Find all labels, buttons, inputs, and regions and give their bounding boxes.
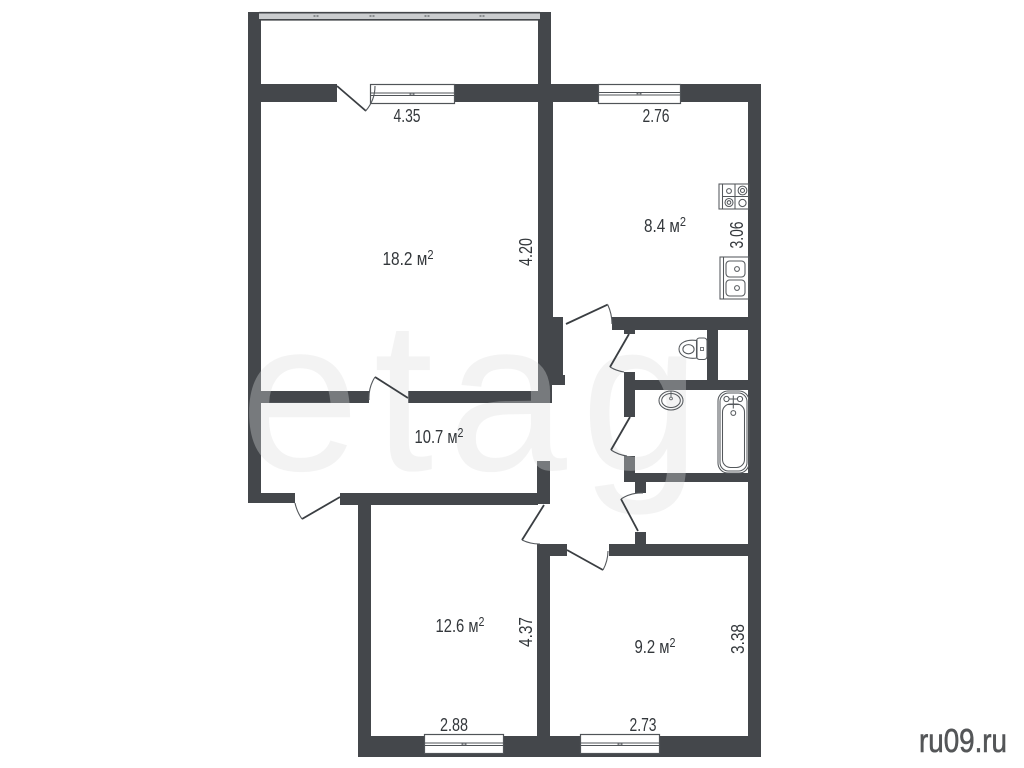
- svg-text:2.73: 2.73: [630, 715, 657, 735]
- svg-text:3.38: 3.38: [728, 624, 748, 654]
- svg-text:ru09.ru: ru09.ru: [919, 722, 1007, 759]
- svg-text:4.37: 4.37: [516, 617, 536, 647]
- svg-text:2.76: 2.76: [643, 106, 670, 126]
- svg-text:4.20: 4.20: [516, 238, 536, 266]
- svg-text:10.7 м2: 10.7 м2: [415, 425, 464, 447]
- svg-text:12.6 м2: 12.6 м2: [436, 614, 485, 636]
- svg-text:3.06: 3.06: [727, 222, 747, 249]
- svg-text:4.35: 4.35: [394, 106, 421, 126]
- svg-text:8.4 м2: 8.4 м2: [644, 214, 686, 236]
- svg-text:18.2 м2: 18.2 м2: [383, 247, 434, 269]
- svg-text:9.2 м2: 9.2 м2: [635, 635, 676, 657]
- svg-text:2.88: 2.88: [440, 715, 468, 735]
- svg-text:etag: etag: [240, 275, 714, 516]
